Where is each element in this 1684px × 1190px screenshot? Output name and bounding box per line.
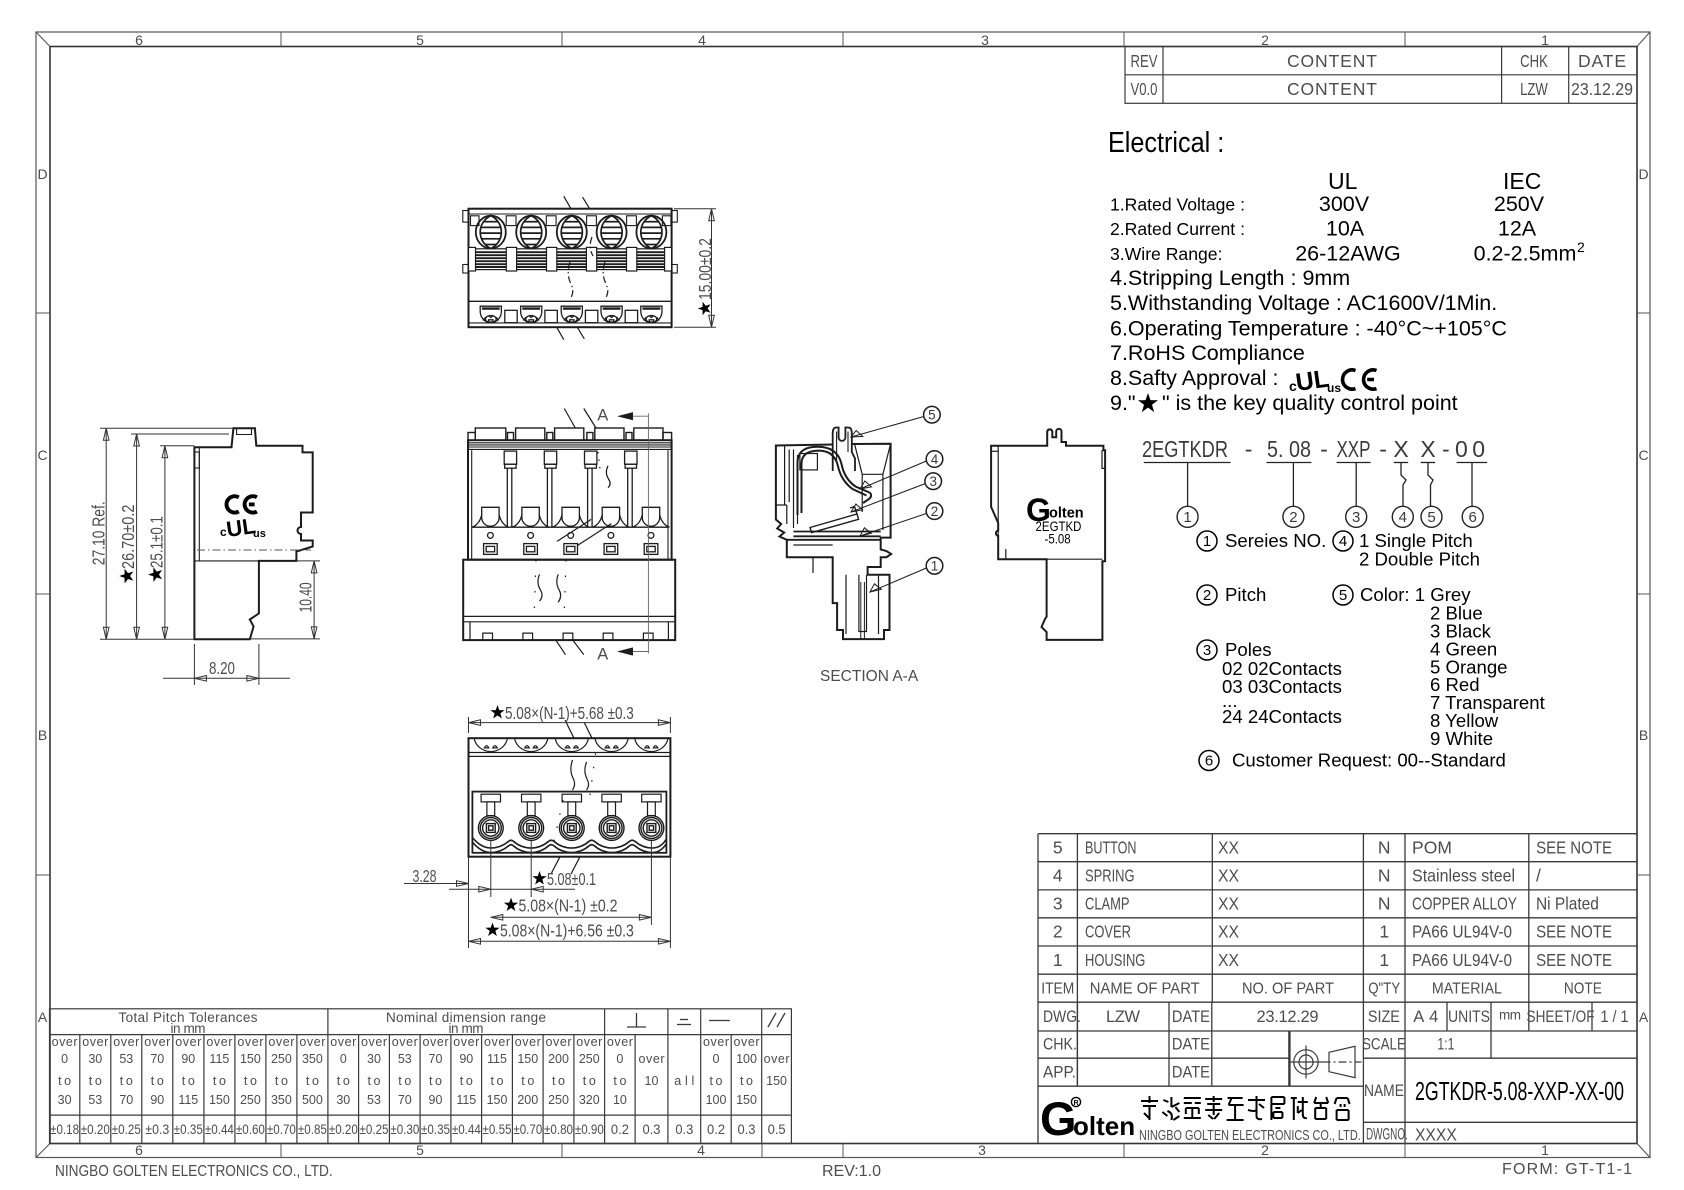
svg-text:DWGNO.: DWGNO. bbox=[1366, 1125, 1408, 1143]
svg-text:5: 5 bbox=[416, 32, 424, 48]
svg-text:Poles: Poles bbox=[1225, 639, 1272, 660]
svg-text:8.20: 8.20 bbox=[209, 659, 235, 678]
svg-text:to: to bbox=[213, 1074, 226, 1088]
svg-text:4: 4 bbox=[1053, 866, 1063, 886]
svg-text:A: A bbox=[597, 646, 608, 664]
svg-text:UNITS: UNITS bbox=[1448, 1008, 1490, 1026]
svg-text:5: 5 bbox=[1053, 838, 1063, 858]
svg-text:±0.20: ±0.20 bbox=[81, 1121, 110, 1137]
svg-text:to: to bbox=[368, 1074, 381, 1088]
svg-text:115: 115 bbox=[209, 1052, 229, 1066]
svg-text:SEE NOTE: SEE NOTE bbox=[1536, 923, 1612, 942]
svg-text:3: 3 bbox=[981, 32, 989, 48]
svg-text:70: 70 bbox=[119, 1093, 133, 1107]
svg-text:350: 350 bbox=[302, 1052, 323, 1066]
svg-text:DATE: DATE bbox=[1578, 51, 1626, 71]
svg-text:2: 2 bbox=[1261, 1142, 1269, 1158]
svg-text:Q"TY: Q"TY bbox=[1368, 981, 1400, 998]
svg-text:over: over bbox=[268, 1035, 294, 1049]
svg-text:2: 2 bbox=[1261, 32, 1269, 48]
svg-text:10: 10 bbox=[613, 1093, 627, 1107]
svg-text:5.Withstanding Voltage : AC160: 5.Withstanding Voltage : AC1600V/1Min. bbox=[1110, 291, 1497, 315]
svg-text:over: over bbox=[546, 1035, 572, 1049]
svg-text:5.08±0.1: 5.08±0.1 bbox=[547, 870, 596, 890]
svg-text:over: over bbox=[206, 1035, 232, 1049]
svg-text:XXXX: XXXX bbox=[1415, 1125, 1457, 1145]
svg-text:C: C bbox=[37, 447, 47, 463]
svg-text:70: 70 bbox=[150, 1052, 164, 1066]
svg-text:C: C bbox=[1638, 447, 1648, 463]
svg-text:3.28: 3.28 bbox=[413, 867, 437, 887]
svg-text:SEE NOTE: SEE NOTE bbox=[1536, 838, 1612, 857]
svg-text:±0.35: ±0.35 bbox=[174, 1121, 203, 1137]
svg-text:4: 4 bbox=[697, 1142, 705, 1158]
svg-text:8.Safty Approval :: 8.Safty Approval : bbox=[1110, 366, 1279, 390]
svg-text:to: to bbox=[552, 1074, 565, 1088]
svg-text:-: - bbox=[1442, 436, 1450, 462]
svg-text:90: 90 bbox=[429, 1093, 443, 1107]
svg-text:in mm: in mm bbox=[171, 1021, 206, 1036]
svg-text:XXP: XXP bbox=[1336, 438, 1370, 463]
svg-text:REV: REV bbox=[1130, 52, 1158, 71]
svg-text:HOUSING: HOUSING bbox=[1085, 951, 1145, 970]
svg-text:150: 150 bbox=[766, 1074, 787, 1088]
svg-text:Ni Plated: Ni Plated bbox=[1536, 894, 1599, 914]
svg-text:-5.08: -5.08 bbox=[1045, 532, 1071, 547]
svg-text:DWG.: DWG. bbox=[1043, 1008, 1081, 1026]
svg-text:over: over bbox=[607, 1035, 633, 1049]
svg-text:3: 3 bbox=[1352, 509, 1360, 526]
svg-text:300V: 300V bbox=[1319, 192, 1370, 216]
svg-text:over: over bbox=[392, 1035, 418, 1049]
svg-text:15.00±0.2: 15.00±0.2 bbox=[697, 238, 716, 300]
svg-text:1: 1 bbox=[1379, 950, 1389, 970]
svg-text:115: 115 bbox=[178, 1093, 198, 1107]
svg-text:0.3: 0.3 bbox=[643, 1122, 661, 1138]
svg-text:1 / 1: 1 / 1 bbox=[1600, 1008, 1628, 1026]
svg-text:12A: 12A bbox=[1498, 217, 1537, 241]
svg-text:30: 30 bbox=[367, 1052, 381, 1066]
svg-text:B: B bbox=[38, 727, 47, 743]
svg-text:3: 3 bbox=[1053, 894, 1063, 914]
svg-text:mm: mm bbox=[1499, 1008, 1521, 1023]
svg-text:to: to bbox=[613, 1074, 626, 1088]
svg-text:350: 350 bbox=[271, 1093, 292, 1107]
svg-text:1: 1 bbox=[931, 559, 939, 574]
svg-text:CLAMP: CLAMP bbox=[1085, 895, 1130, 914]
svg-text:Pitch: Pitch bbox=[1225, 584, 1266, 605]
svg-text:over: over bbox=[639, 1052, 665, 1066]
svg-text:Customer Request: 00--Standard: Customer Request: 00--Standard bbox=[1232, 750, 1506, 771]
svg-text:115: 115 bbox=[456, 1093, 476, 1107]
svg-text:LZW: LZW bbox=[1520, 80, 1548, 99]
svg-text:10.40: 10.40 bbox=[296, 582, 316, 612]
svg-text:±0.44: ±0.44 bbox=[452, 1121, 481, 1137]
svg-text:to: to bbox=[398, 1074, 411, 1088]
svg-text:53: 53 bbox=[88, 1093, 102, 1107]
svg-text:R: R bbox=[1073, 1100, 1078, 1107]
svg-text:30: 30 bbox=[88, 1052, 102, 1066]
svg-text:30: 30 bbox=[336, 1093, 350, 1107]
svg-text:4.Stripping Length : 9mm: 4.Stripping Length : 9mm bbox=[1110, 266, 1350, 290]
svg-text:A: A bbox=[1639, 1009, 1649, 1025]
svg-text:5.08×(N-1) ±0.2: 5.08×(N-1) ±0.2 bbox=[519, 897, 618, 916]
svg-text:all: all bbox=[674, 1074, 694, 1088]
svg-text:5: 5 bbox=[1427, 509, 1435, 526]
svg-text:±0.25: ±0.25 bbox=[360, 1121, 389, 1137]
svg-text:70: 70 bbox=[398, 1093, 412, 1107]
svg-text:1: 1 bbox=[1203, 533, 1211, 550]
svg-text:6: 6 bbox=[135, 32, 143, 48]
svg-text:A: A bbox=[38, 1009, 48, 1025]
svg-text:0.2: 0.2 bbox=[611, 1122, 629, 1138]
svg-text:1: 1 bbox=[1183, 509, 1191, 526]
svg-text:2EGTKDR: 2EGTKDR bbox=[1142, 437, 1228, 463]
svg-text:N: N bbox=[1378, 866, 1391, 886]
svg-text:7.RoHS Compliance: 7.RoHS Compliance bbox=[1110, 341, 1305, 365]
svg-text:±0.18: ±0.18 bbox=[50, 1121, 79, 1137]
svg-text:1: 1 bbox=[1541, 32, 1549, 48]
svg-text:23.12.29: 23.12.29 bbox=[1257, 1008, 1319, 1026]
svg-text:XX: XX bbox=[1218, 838, 1239, 858]
svg-text:D: D bbox=[37, 166, 47, 182]
svg-text:03 03Contacts: 03 03Contacts bbox=[1222, 676, 1342, 697]
svg-text:2: 2 bbox=[1577, 239, 1585, 255]
svg-text:over: over bbox=[113, 1035, 139, 1049]
svg-text:over: over bbox=[515, 1035, 541, 1049]
svg-text:500: 500 bbox=[302, 1093, 323, 1107]
svg-text:90: 90 bbox=[150, 1093, 164, 1107]
svg-text:over: over bbox=[52, 1035, 78, 1049]
svg-text:1: 1 bbox=[1541, 1142, 1549, 1158]
svg-text:2: 2 bbox=[1203, 587, 1211, 604]
svg-text:-: - bbox=[1245, 436, 1253, 462]
svg-text:over: over bbox=[734, 1035, 760, 1049]
svg-text:over: over bbox=[237, 1035, 263, 1049]
svg-text:±0.80: ±0.80 bbox=[544, 1121, 573, 1137]
svg-text:over: over bbox=[299, 1035, 325, 1049]
svg-text:over: over bbox=[576, 1035, 602, 1049]
svg-text:3: 3 bbox=[1203, 642, 1211, 659]
svg-text:PA66 UL94V-0: PA66 UL94V-0 bbox=[1412, 923, 1512, 942]
svg-text:1: 1 bbox=[1379, 922, 1389, 942]
svg-text:UL: UL bbox=[1328, 168, 1358, 194]
svg-text:IEC: IEC bbox=[1503, 168, 1541, 194]
svg-text:Sereies NO.: Sereies NO. bbox=[1225, 530, 1326, 551]
svg-text:2: 2 bbox=[1289, 509, 1297, 526]
svg-text:3: 3 bbox=[929, 474, 937, 489]
svg-text:over: over bbox=[764, 1052, 790, 1066]
svg-text:X: X bbox=[1420, 436, 1435, 462]
svg-text:to: to bbox=[151, 1074, 164, 1088]
svg-text:to: to bbox=[275, 1074, 288, 1088]
svg-text:SCALE: SCALE bbox=[1362, 1035, 1406, 1054]
svg-text:over: over bbox=[703, 1035, 729, 1049]
svg-text:-: - bbox=[1320, 436, 1328, 462]
svg-text:1.Rated Voltage :: 1.Rated Voltage : bbox=[1110, 195, 1245, 215]
svg-text:26.70±0.2: 26.70±0.2 bbox=[119, 505, 139, 569]
svg-text:over: over bbox=[330, 1035, 356, 1049]
svg-text:us: us bbox=[1327, 381, 1341, 395]
svg-text:6: 6 bbox=[135, 1142, 143, 1158]
svg-text:to: to bbox=[710, 1074, 723, 1088]
svg-text:10A: 10A bbox=[1326, 217, 1365, 241]
svg-text:53: 53 bbox=[119, 1052, 133, 1066]
svg-text:POM: POM bbox=[1412, 838, 1452, 858]
svg-text:1:1: 1:1 bbox=[1437, 1036, 1454, 1054]
svg-text:115: 115 bbox=[487, 1052, 507, 1066]
svg-text:NO. OF PART: NO. OF PART bbox=[1242, 980, 1334, 998]
svg-text:250: 250 bbox=[579, 1052, 600, 1066]
svg-text:2 Double Pitch: 2 Double Pitch bbox=[1359, 549, 1480, 570]
svg-text:±0.30: ±0.30 bbox=[390, 1121, 419, 1137]
svg-text:1: 1 bbox=[1053, 950, 1063, 970]
svg-text:CONTENT: CONTENT bbox=[1287, 51, 1377, 71]
svg-text:D: D bbox=[1638, 166, 1648, 182]
svg-text:CHK: CHK bbox=[1520, 52, 1548, 71]
svg-text:4: 4 bbox=[1339, 533, 1347, 550]
svg-text:53: 53 bbox=[367, 1093, 381, 1107]
svg-text:/: / bbox=[1536, 866, 1541, 886]
svg-text:200: 200 bbox=[517, 1093, 538, 1107]
svg-text:ITEM: ITEM bbox=[1041, 980, 1074, 998]
svg-text:SHEET/OF: SHEET/OF bbox=[1527, 1008, 1595, 1027]
svg-text:V0.0: V0.0 bbox=[1130, 80, 1157, 99]
svg-text:SECTION A-A: SECTION A-A bbox=[820, 668, 919, 685]
svg-text:2.Rated Current :: 2.Rated Current : bbox=[1110, 219, 1245, 239]
svg-text:XX: XX bbox=[1218, 950, 1239, 970]
svg-text:NOTE: NOTE bbox=[1564, 981, 1602, 998]
svg-text:±0.44: ±0.44 bbox=[205, 1121, 234, 1137]
svg-text:0: 0 bbox=[61, 1052, 68, 1066]
svg-text:over: over bbox=[453, 1035, 479, 1049]
svg-text:FORM: GT-T1-1: FORM: GT-T1-1 bbox=[1502, 1161, 1632, 1178]
svg-text:5.08×(N-1)+6.56 ±0.3: 5.08×(N-1)+6.56 ±0.3 bbox=[500, 922, 634, 941]
svg-text:over: over bbox=[82, 1035, 108, 1049]
svg-text:NINGBO GOLTEN ELECTRONICS CO.,: NINGBO GOLTEN ELECTRONICS CO., LTD. bbox=[55, 1163, 333, 1180]
svg-text:MATERIAL: MATERIAL bbox=[1432, 980, 1502, 998]
svg-text:00: 00 bbox=[1455, 436, 1485, 462]
svg-text:250: 250 bbox=[271, 1052, 292, 1066]
svg-text:5.08×(N-1)+5.68 ±0.3: 5.08×(N-1)+5.68 ±0.3 bbox=[505, 704, 634, 723]
svg-text:0.5: 0.5 bbox=[768, 1122, 786, 1138]
svg-text:±0.20: ±0.20 bbox=[329, 1121, 358, 1137]
svg-text:9.": 9." bbox=[1110, 391, 1136, 415]
svg-text:SPRING: SPRING bbox=[1085, 867, 1135, 886]
svg-text:to: to bbox=[429, 1074, 442, 1088]
svg-text:DATE: DATE bbox=[1172, 1036, 1210, 1054]
svg-text:0.2-2.5mm: 0.2-2.5mm bbox=[1474, 242, 1577, 266]
svg-text:N: N bbox=[1378, 894, 1391, 914]
svg-text:LZW: LZW bbox=[1106, 1008, 1140, 1026]
svg-text:2: 2 bbox=[1053, 922, 1063, 942]
svg-text:G: G bbox=[1040, 1092, 1077, 1145]
svg-text:5. 08: 5. 08 bbox=[1267, 437, 1311, 463]
svg-text:CONTENT: CONTENT bbox=[1287, 79, 1377, 99]
svg-text:A: A bbox=[597, 407, 608, 425]
svg-text:UL: UL bbox=[1294, 365, 1331, 397]
svg-text:0: 0 bbox=[713, 1052, 720, 1066]
svg-text:to: to bbox=[521, 1074, 534, 1088]
svg-text:±0.85: ±0.85 bbox=[298, 1121, 327, 1137]
svg-text:150: 150 bbox=[487, 1093, 508, 1107]
svg-text:to: to bbox=[337, 1074, 350, 1088]
svg-text:XX: XX bbox=[1218, 922, 1239, 942]
svg-text:to: to bbox=[491, 1074, 504, 1088]
svg-text:B: B bbox=[1639, 727, 1648, 743]
svg-text:±0.60: ±0.60 bbox=[236, 1121, 265, 1137]
svg-text:30: 30 bbox=[58, 1093, 72, 1107]
svg-text:27.10 Ref.: 27.10 Ref. bbox=[90, 501, 109, 565]
svg-text:NINGBO GOLTEN ELECTRONICS CO.,: NINGBO GOLTEN ELECTRONICS CO., LTD. bbox=[1139, 1126, 1361, 1143]
svg-text:DATE: DATE bbox=[1172, 1008, 1210, 1026]
svg-text:over: over bbox=[423, 1035, 449, 1049]
svg-text:over: over bbox=[361, 1035, 387, 1049]
svg-text:over: over bbox=[484, 1035, 510, 1049]
svg-text:150: 150 bbox=[517, 1052, 538, 1066]
svg-text:25.1±0.1: 25.1±0.1 bbox=[148, 516, 167, 568]
svg-text:70: 70 bbox=[429, 1052, 443, 1066]
svg-text:±0.35: ±0.35 bbox=[421, 1121, 450, 1137]
svg-text:Stainless steel: Stainless steel bbox=[1412, 866, 1515, 886]
svg-text:to: to bbox=[460, 1074, 473, 1088]
svg-text:NAME: NAME bbox=[1364, 1082, 1404, 1100]
svg-text:90: 90 bbox=[459, 1052, 473, 1066]
svg-text:9 White: 9 White bbox=[1430, 728, 1493, 749]
svg-text:CHK.: CHK. bbox=[1043, 1036, 1077, 1054]
svg-text:±0.90: ±0.90 bbox=[575, 1121, 604, 1137]
svg-text:XX: XX bbox=[1218, 866, 1239, 886]
svg-text:0: 0 bbox=[616, 1052, 623, 1066]
svg-text:to: to bbox=[244, 1074, 257, 1088]
svg-text:4: 4 bbox=[931, 452, 939, 467]
svg-text:in mm: in mm bbox=[449, 1021, 484, 1036]
svg-text:±0.3: ±0.3 bbox=[145, 1121, 169, 1137]
svg-text:-: - bbox=[1379, 436, 1387, 462]
svg-text:to: to bbox=[58, 1074, 71, 1088]
svg-text:APP.: APP. bbox=[1043, 1064, 1076, 1082]
svg-text:±0.70: ±0.70 bbox=[267, 1121, 296, 1137]
svg-text:200: 200 bbox=[548, 1052, 569, 1066]
svg-text:SEE NOTE: SEE NOTE bbox=[1536, 951, 1612, 970]
svg-text:over: over bbox=[144, 1035, 170, 1049]
svg-text:0.2: 0.2 bbox=[707, 1122, 725, 1138]
svg-text:us: us bbox=[253, 528, 266, 540]
svg-text:5: 5 bbox=[416, 1142, 424, 1158]
svg-text:250: 250 bbox=[240, 1093, 261, 1107]
svg-text:53: 53 bbox=[398, 1052, 412, 1066]
svg-text:6.Operating Temperature : -40°: 6.Operating Temperature : -40°C~+105°C bbox=[1110, 316, 1507, 340]
svg-text:to: to bbox=[182, 1074, 195, 1088]
svg-text:5: 5 bbox=[928, 408, 936, 423]
svg-text:to: to bbox=[89, 1074, 102, 1088]
svg-text:to: to bbox=[306, 1074, 319, 1088]
svg-text:100: 100 bbox=[736, 1052, 757, 1066]
svg-text:NAME OF PART: NAME OF PART bbox=[1090, 980, 1200, 998]
svg-text:0.3: 0.3 bbox=[738, 1122, 756, 1138]
svg-text:4: 4 bbox=[698, 32, 706, 48]
svg-text:SIZE: SIZE bbox=[1368, 1008, 1400, 1026]
svg-text:REV:1.0: REV:1.0 bbox=[822, 1163, 881, 1180]
svg-text:BUTTON: BUTTON bbox=[1085, 839, 1137, 859]
svg-text:DATE: DATE bbox=[1172, 1064, 1210, 1082]
svg-text:COVER: COVER bbox=[1085, 923, 1131, 942]
svg-text:6: 6 bbox=[1469, 509, 1477, 526]
svg-text:to: to bbox=[120, 1074, 133, 1088]
svg-text:to: to bbox=[740, 1074, 753, 1088]
svg-text:5: 5 bbox=[1339, 587, 1347, 604]
svg-text:2: 2 bbox=[931, 504, 939, 519]
svg-text:±0.70: ±0.70 bbox=[513, 1121, 542, 1137]
svg-text:N: N bbox=[1378, 838, 1391, 858]
svg-text:3.Wire Range:: 3.Wire Range: bbox=[1110, 244, 1222, 264]
svg-text:olten: olten bbox=[1073, 1111, 1135, 1141]
svg-text:±0.55: ±0.55 bbox=[483, 1121, 512, 1137]
svg-text:6: 6 bbox=[1205, 753, 1213, 770]
svg-text:10: 10 bbox=[645, 1074, 659, 1088]
svg-text:Electrical :: Electrical : bbox=[1108, 125, 1224, 158]
svg-text:3: 3 bbox=[978, 1142, 986, 1158]
svg-text:250V: 250V bbox=[1494, 192, 1545, 216]
svg-text:23.12.29: 23.12.29 bbox=[1571, 79, 1633, 99]
svg-text:250: 250 bbox=[548, 1093, 569, 1107]
svg-text:150: 150 bbox=[240, 1052, 261, 1066]
svg-text:90: 90 bbox=[181, 1052, 195, 1066]
svg-text:0: 0 bbox=[340, 1052, 347, 1066]
svg-text:over: over bbox=[175, 1035, 201, 1049]
svg-text:150: 150 bbox=[736, 1093, 757, 1107]
svg-text:PA66 UL94V-0: PA66 UL94V-0 bbox=[1412, 951, 1512, 970]
svg-text:0.3: 0.3 bbox=[675, 1122, 693, 1138]
svg-text:COPPER ALLOY: COPPER ALLOY bbox=[1412, 895, 1517, 914]
svg-text:100: 100 bbox=[706, 1093, 727, 1107]
svg-text:4: 4 bbox=[1399, 509, 1407, 526]
svg-text:2GTKDR-5.08-XXP-XX-00: 2GTKDR-5.08-XXP-XX-00 bbox=[1415, 1077, 1624, 1106]
svg-text:150: 150 bbox=[209, 1093, 230, 1107]
svg-text:A4: A4 bbox=[1413, 1008, 1438, 1026]
svg-text:X: X bbox=[1393, 436, 1408, 462]
svg-text:to: to bbox=[583, 1074, 596, 1088]
svg-text:320: 320 bbox=[579, 1093, 600, 1107]
svg-text:24 24Contacts: 24 24Contacts bbox=[1222, 706, 1342, 727]
svg-text:26-12AWG: 26-12AWG bbox=[1295, 242, 1401, 266]
svg-text:±0.25: ±0.25 bbox=[112, 1121, 141, 1137]
svg-text:XX: XX bbox=[1218, 894, 1239, 914]
